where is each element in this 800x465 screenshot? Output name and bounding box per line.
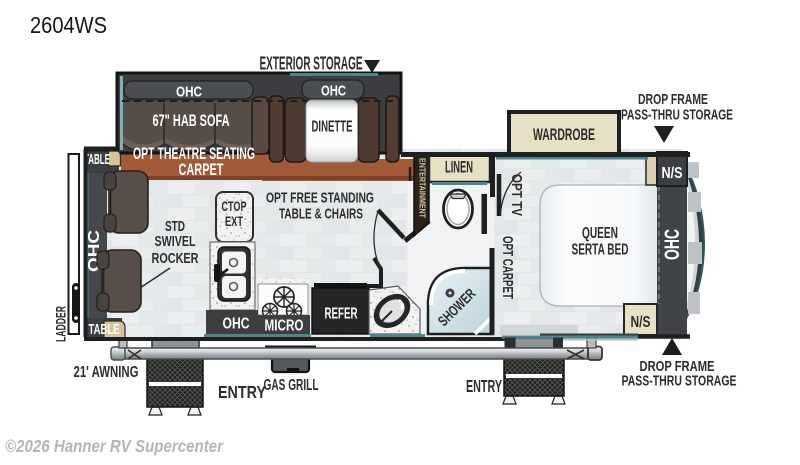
svg-text:OHC: OHC xyxy=(223,316,250,333)
svg-text:ENTRY: ENTRY xyxy=(218,382,266,402)
svg-text:GAS GRILL: GAS GRILL xyxy=(264,377,319,394)
svg-text:CTOP: CTOP xyxy=(222,198,247,214)
svg-text:SERTA BED: SERTA BED xyxy=(572,242,629,259)
svg-text:67" HAB SOFA: 67" HAB SOFA xyxy=(153,112,230,130)
svg-text:DROP FRAME: DROP FRAME xyxy=(638,91,708,108)
svg-text:STD: STD xyxy=(165,219,185,235)
svg-text:OPT FREE STANDING: OPT FREE STANDING xyxy=(266,190,374,207)
svg-text:2604WS: 2604WS xyxy=(30,12,107,38)
svg-text:OHC: OHC xyxy=(176,84,202,101)
svg-text:MICRO: MICRO xyxy=(265,318,304,335)
svg-text:PASS-THRU STORAGE: PASS-THRU STORAGE xyxy=(621,107,733,124)
svg-text:SWIVEL: SWIVEL xyxy=(155,234,196,250)
svg-text:OHC: OHC xyxy=(321,83,346,100)
svg-text:DINETTE: DINETTE xyxy=(312,119,353,136)
svg-text:ENTRY: ENTRY xyxy=(466,376,502,396)
svg-text:REFER: REFER xyxy=(325,306,358,323)
svg-text:EXT: EXT xyxy=(225,213,243,229)
svg-text:TABLE & CHAIRS: TABLE & CHAIRS xyxy=(279,206,363,223)
svg-text:LINEN: LINEN xyxy=(445,159,473,177)
svg-text:PASS-THRU STORAGE: PASS-THRU STORAGE xyxy=(622,373,737,390)
svg-text:ROCKER: ROCKER xyxy=(152,251,199,267)
svg-text:TABLE: TABLE xyxy=(89,321,120,338)
svg-text:QUEEN: QUEEN xyxy=(582,225,618,242)
svg-text:CARPET: CARPET xyxy=(179,161,224,179)
svg-text:21' AWNING: 21' AWNING xyxy=(74,364,139,381)
svg-text:WARDROBE: WARDROBE xyxy=(533,125,595,144)
svg-text:ENTERTAINMENT: ENTERTAINMENT xyxy=(418,158,427,218)
svg-text:N/S: N/S xyxy=(662,165,683,182)
svg-text:OPT TV: OPT TV xyxy=(508,174,525,216)
svg-text:TABLE: TABLE xyxy=(84,152,110,168)
svg-text:OHC: OHC xyxy=(661,229,684,260)
svg-text:OPT CARPET: OPT CARPET xyxy=(499,236,516,299)
svg-text:©2026 Hanner RV Supercenter: ©2026 Hanner RV Supercenter xyxy=(5,436,224,456)
svg-text:EXTERIOR STORAGE: EXTERIOR STORAGE xyxy=(260,54,363,74)
svg-text:LADDER: LADDER xyxy=(53,306,69,342)
svg-text:N/S: N/S xyxy=(631,314,651,331)
